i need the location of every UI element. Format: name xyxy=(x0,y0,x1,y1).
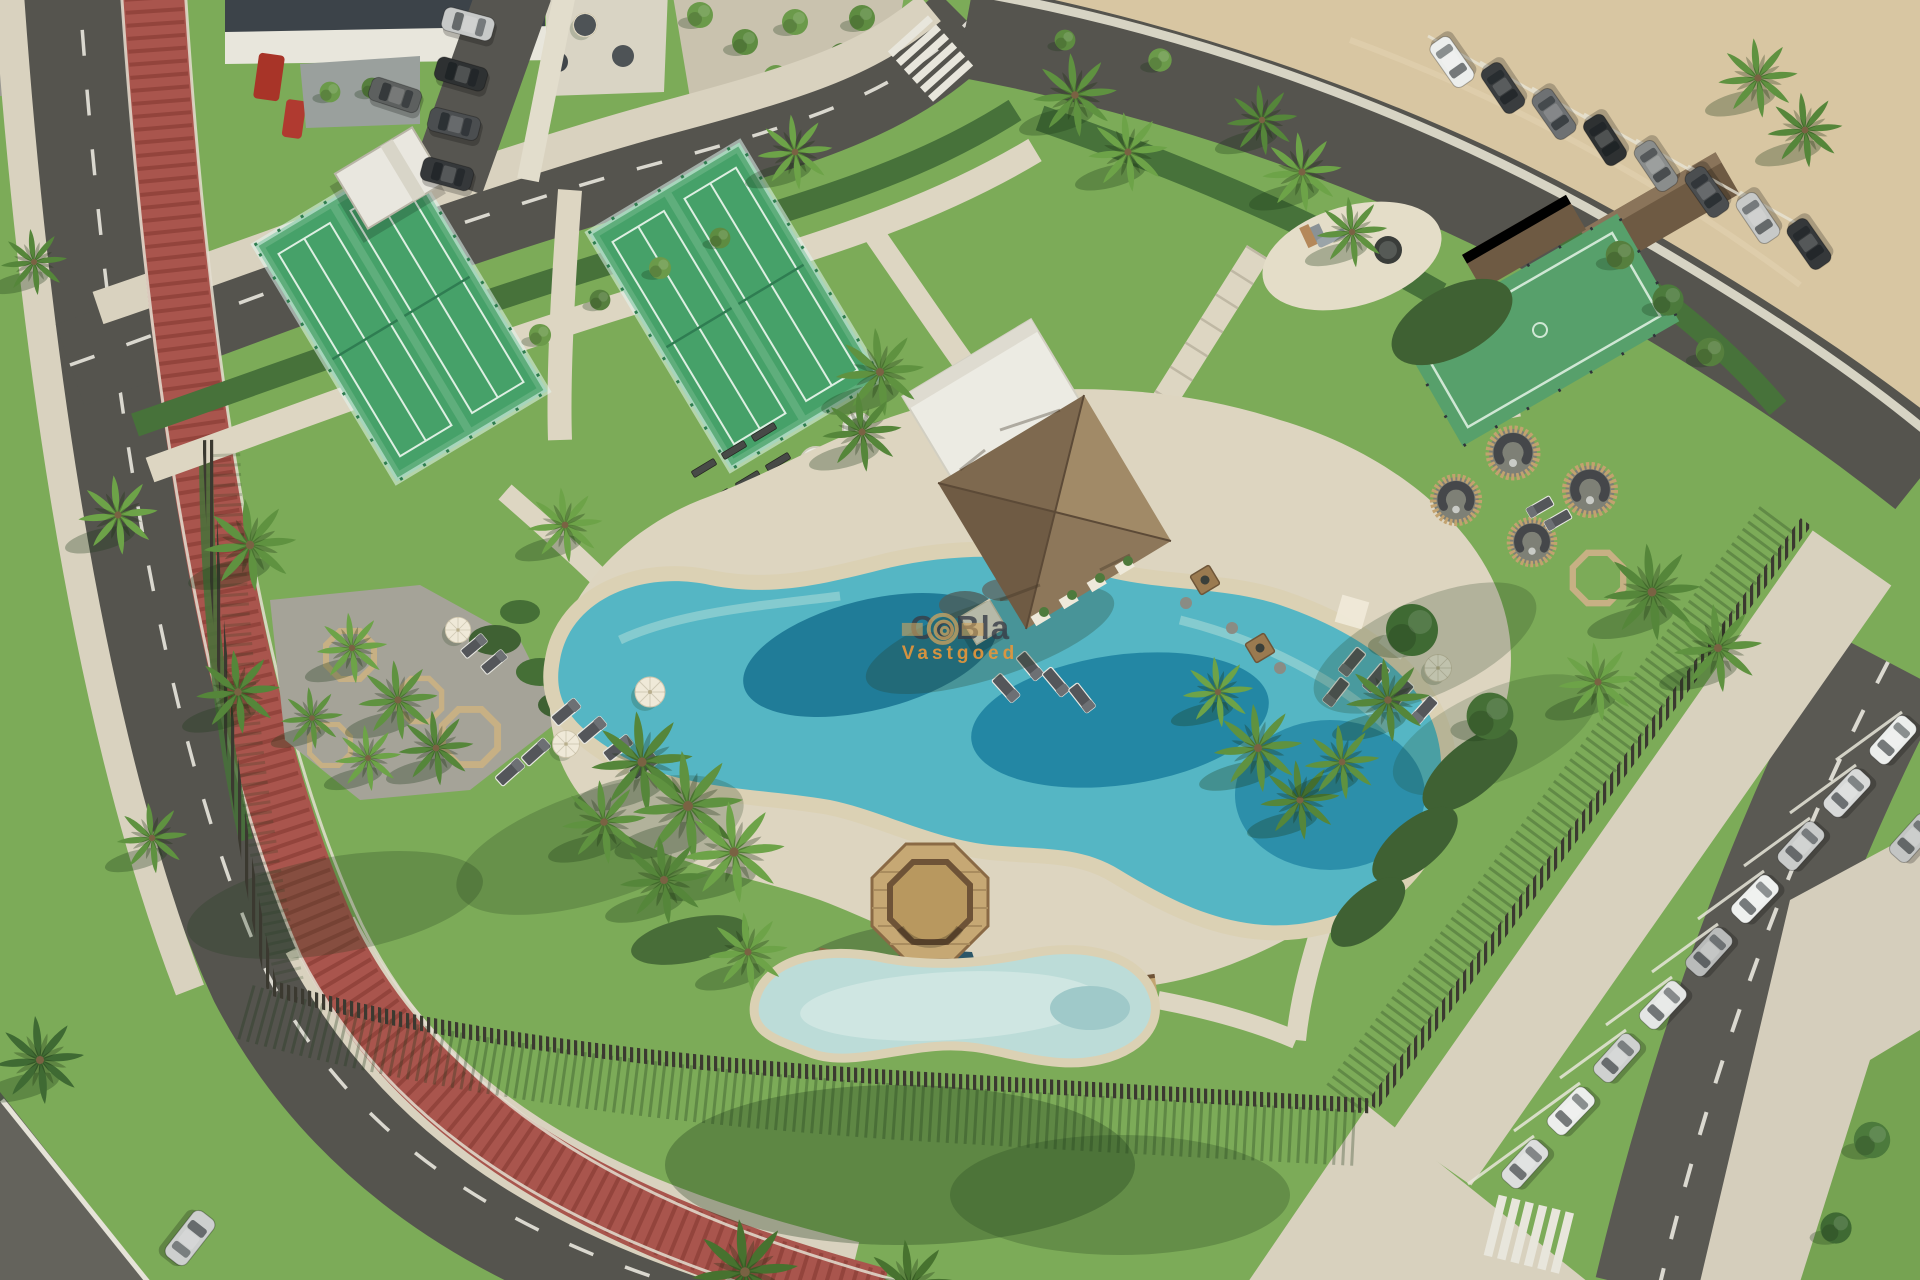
wooden-gazebo xyxy=(872,844,988,960)
aerial-photo: CoBla Vastgoed xyxy=(0,0,1920,1280)
kids-pool xyxy=(759,954,1151,1058)
scene-canvas xyxy=(0,0,1920,1280)
